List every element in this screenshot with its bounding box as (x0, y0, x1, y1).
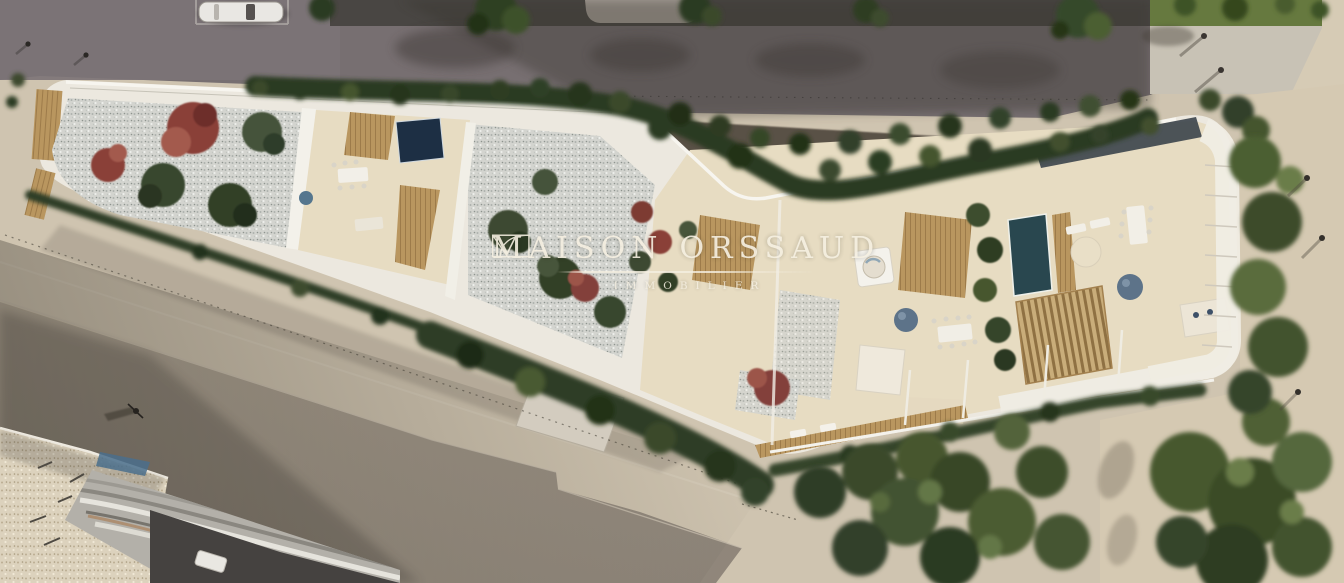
pergola (1016, 286, 1112, 384)
umbrella-blue-2 (1117, 274, 1143, 300)
aerial-render-scene (0, 0, 1344, 583)
pool-left (396, 118, 444, 163)
pool-right (1008, 214, 1052, 296)
aerial-render-stage: MAISON ORSSAUD IMMOBILIER (0, 0, 1344, 583)
jacuzzi (854, 247, 895, 288)
umbrella-blue-1 (894, 308, 918, 332)
spa-blue (299, 191, 313, 205)
parked-car (197, 2, 289, 26)
